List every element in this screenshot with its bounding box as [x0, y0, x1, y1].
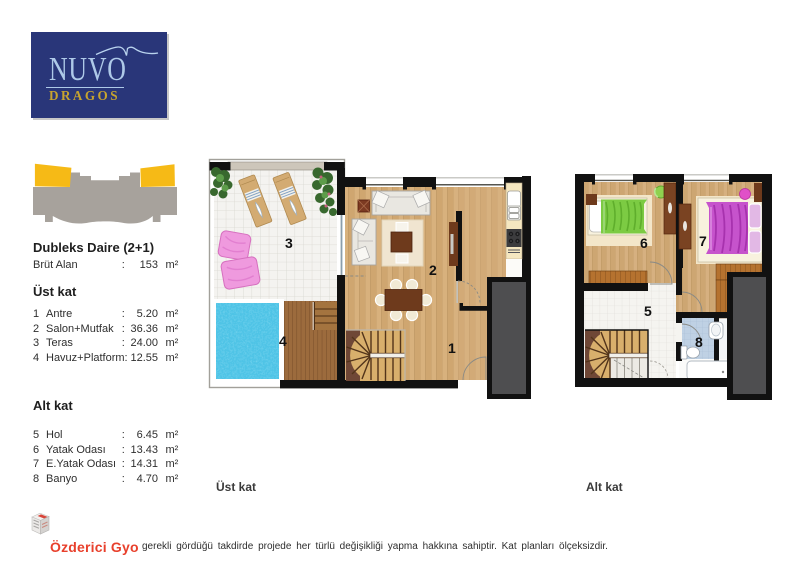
svg-text:4: 4: [279, 333, 287, 349]
svg-text:7: 7: [699, 233, 707, 249]
svg-text:3: 3: [285, 235, 293, 251]
svg-text:1: 1: [448, 340, 456, 356]
svg-text:5: 5: [644, 303, 652, 319]
svg-text:8: 8: [695, 334, 703, 350]
svg-text:6: 6: [640, 235, 648, 251]
svg-text:2: 2: [429, 262, 437, 278]
